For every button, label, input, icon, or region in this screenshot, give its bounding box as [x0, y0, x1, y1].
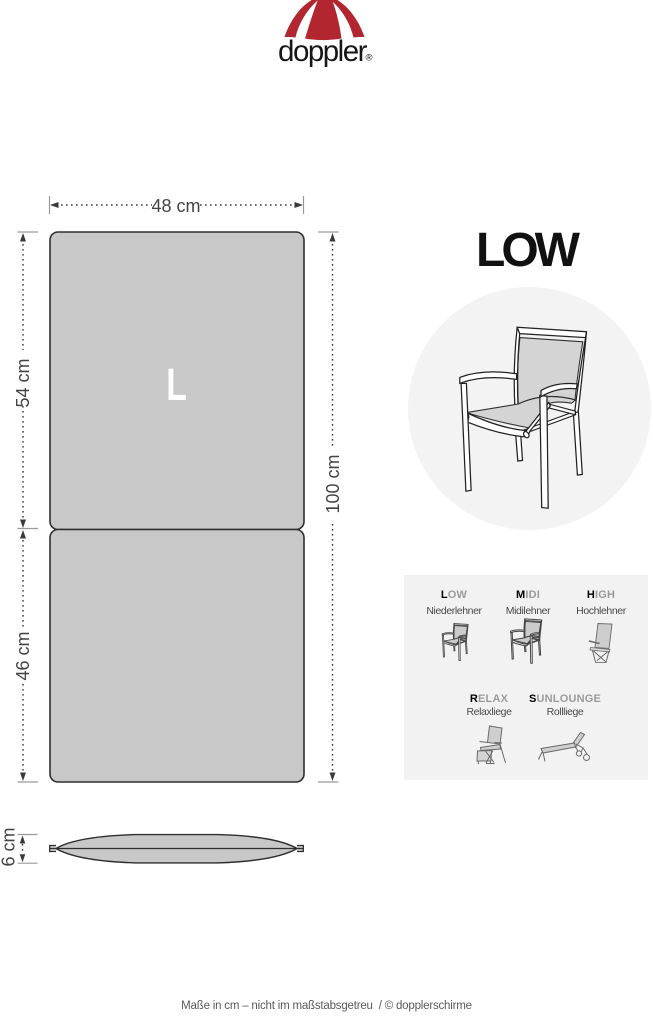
svg-text:100 cm: 100 cm	[323, 454, 343, 513]
svg-text:L: L	[166, 360, 187, 410]
svg-text:®: ®	[366, 53, 373, 64]
svg-text:46 cm: 46 cm	[13, 631, 33, 680]
svg-text:54 cm: 54 cm	[13, 358, 33, 407]
svg-text:48 cm: 48 cm	[151, 196, 200, 216]
svg-text:6 cm: 6 cm	[0, 827, 19, 866]
svg-text:doppler: doppler	[278, 35, 368, 68]
